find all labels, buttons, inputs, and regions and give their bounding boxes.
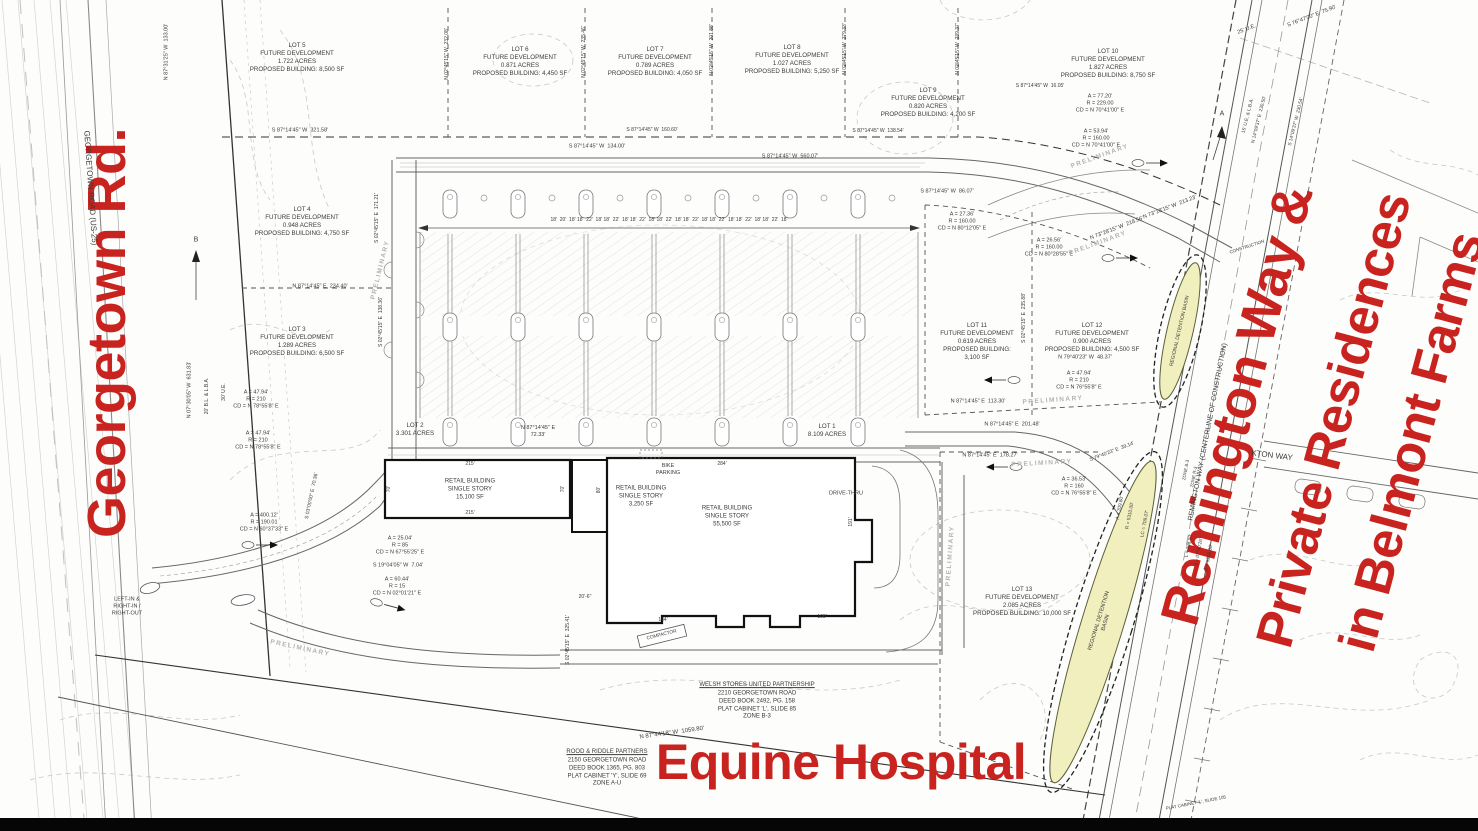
retail-building-3250 xyxy=(572,460,608,532)
georgetown-road-linework xyxy=(0,0,152,831)
compactor-pad xyxy=(637,624,686,647)
matchline-a-arrow xyxy=(1213,126,1226,160)
retail-building-15100 xyxy=(385,460,570,518)
remington-way-linework xyxy=(1081,0,1478,831)
buildings xyxy=(385,450,938,652)
matchline-b-arrow xyxy=(192,250,200,300)
parking-field xyxy=(418,190,920,446)
retail-building-55500 xyxy=(607,458,872,627)
drive-thru-lanes xyxy=(872,450,938,652)
bike-parking-pad xyxy=(640,450,662,458)
site-plan-drawing xyxy=(0,0,1478,831)
bottom-black-bar xyxy=(0,818,1478,831)
site-plan-page: Georgetown Rd. Remington Way & Private R… xyxy=(0,0,1478,831)
